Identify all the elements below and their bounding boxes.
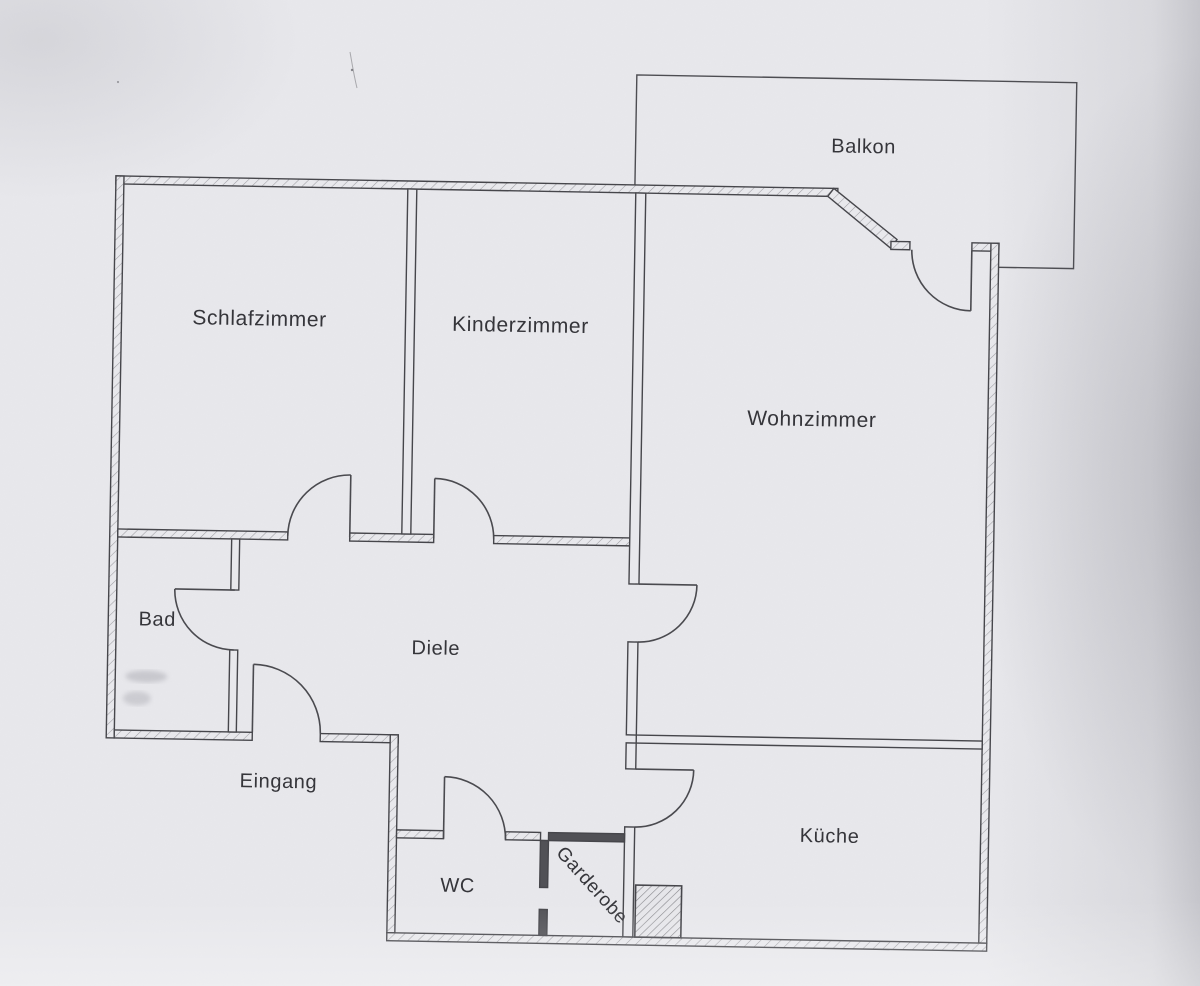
scanned-floor-plan-page: Balkon Schlafzimmer Kinderzimmer Wohnzim… [0,0,1200,986]
bottom-light-band [0,900,1200,986]
photo-shading [0,0,1200,986]
floor-plan-canvas: Balkon Schlafzimmer Kinderzimmer Wohnzim… [0,0,1200,986]
